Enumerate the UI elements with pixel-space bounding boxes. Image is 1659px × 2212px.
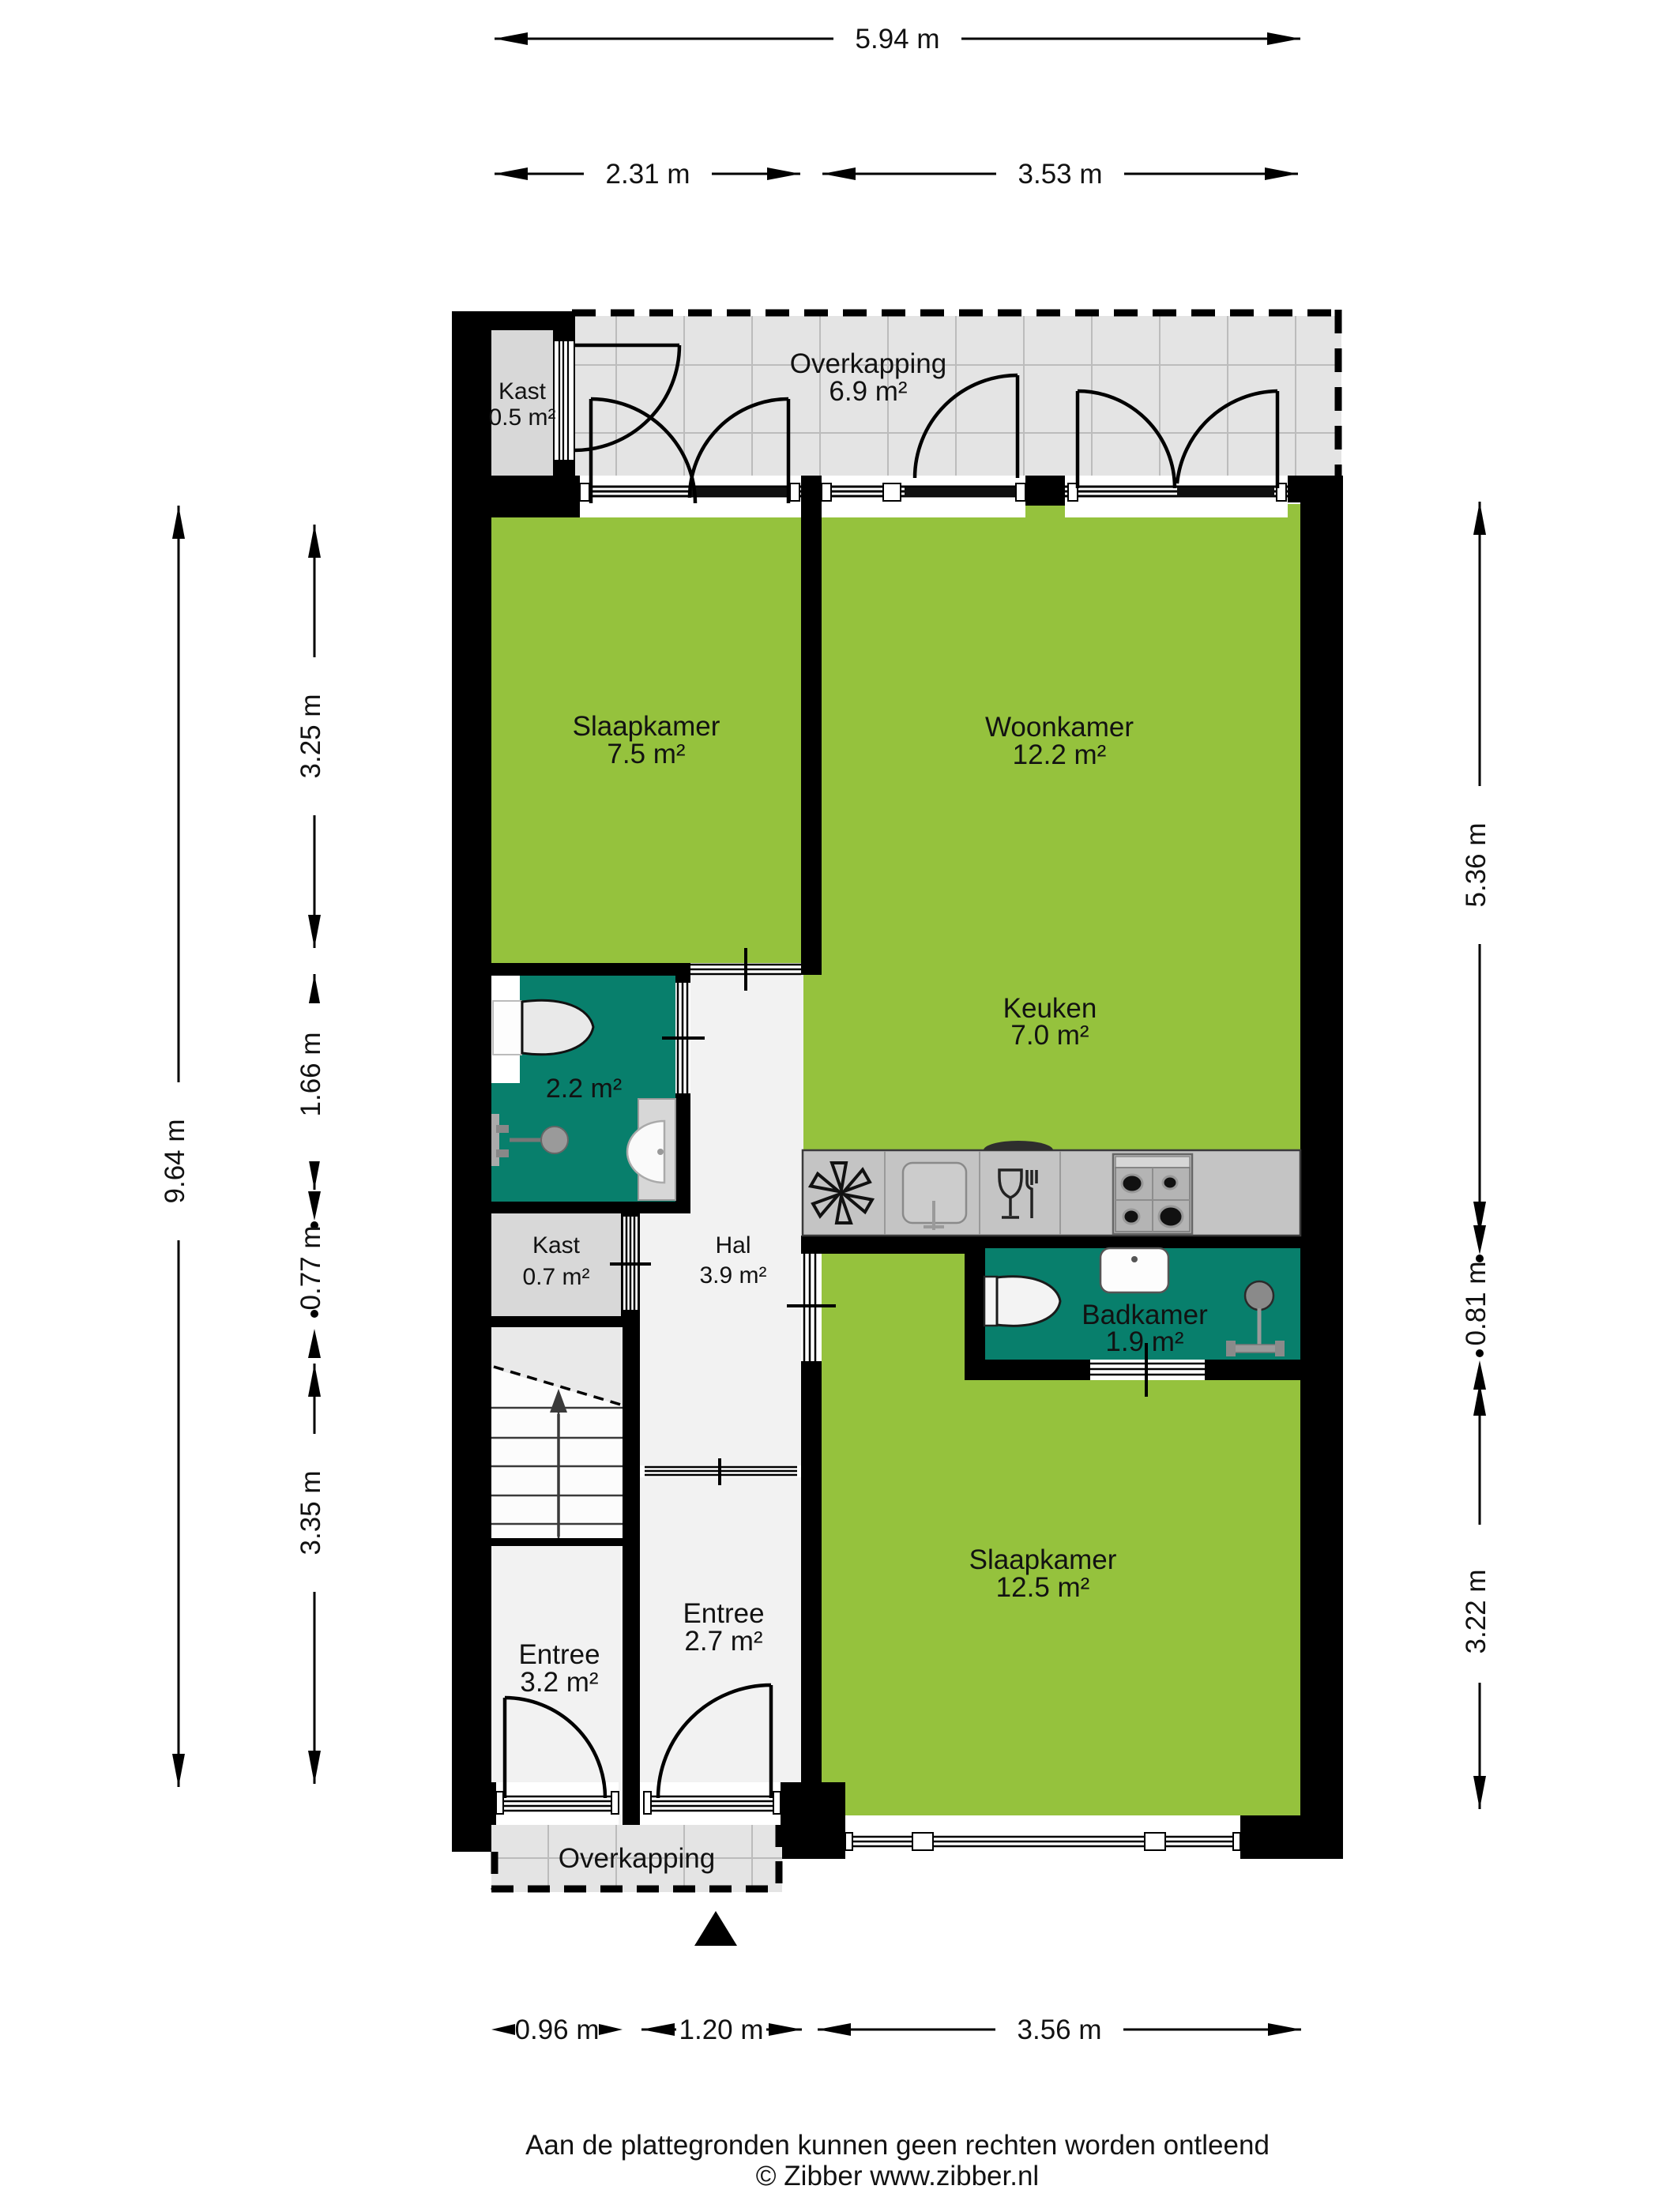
svg-text:3.53 m: 3.53 m [1018,159,1103,190]
svg-text:2.31 m: 2.31 m [606,159,690,190]
svg-text:6.9 m²: 6.9 m² [829,376,907,407]
svg-text:3.25 m: 3.25 m [295,694,326,779]
svg-text:1.66 m: 1.66 m [295,1033,326,1117]
svg-text:Overkapping: Overkapping [559,1843,715,1874]
svg-text:3.56 m: 3.56 m [1018,2014,1102,2045]
svg-text:Slaapkamer: Slaapkamer [969,1544,1117,1575]
svg-text:5.36 m: 5.36 m [1461,823,1492,908]
svg-text:3.22 m: 3.22 m [1461,1570,1492,1654]
svg-text:7.5 m²: 7.5 m² [607,739,685,769]
svg-text:7.0 m²: 7.0 m² [1010,1020,1089,1051]
svg-text:2.2 m²: 2.2 m² [546,1074,622,1104]
svg-text:12.2 m²: 12.2 m² [1013,739,1107,770]
svg-text:Woonkamer: Woonkamer [985,712,1134,743]
svg-text:0.81 m: 0.81 m [1461,1262,1492,1346]
svg-text:Aan de plattegronden kunnen ge: Aan de plattegronden kunnen geen rechten… [525,2130,1270,2161]
svg-text:0.96 m: 0.96 m [515,2014,600,2045]
svg-text:Slaapkamer: Slaapkamer [573,711,720,742]
svg-text:3.2 m²: 3.2 m² [520,1667,598,1698]
svg-text:0.7 m²: 0.7 m² [522,1264,589,1290]
svg-text:0.77 m: 0.77 m [295,1226,326,1311]
svg-text:2.7 m²: 2.7 m² [684,1626,762,1657]
svg-text:Overkapping: Overkapping [790,348,946,379]
svg-text:12.5 m²: 12.5 m² [996,1572,1090,1603]
svg-text:1.20 m: 1.20 m [679,2014,764,2045]
svg-text:Kast: Kast [498,378,547,404]
svg-text:0.5 m²: 0.5 m² [488,404,555,431]
svg-text:9.64 m: 9.64 m [160,1119,190,1204]
svg-text:5.94 m: 5.94 m [856,24,940,55]
svg-text:© Zibber www.zibber.nl: © Zibber www.zibber.nl [756,2161,1039,2191]
svg-text:3.35 m: 3.35 m [295,1471,326,1556]
svg-text:Entree: Entree [518,1639,600,1670]
svg-text:Entree: Entree [683,1598,764,1629]
svg-text:3.9 m²: 3.9 m² [699,1262,766,1288]
svg-text:Hal: Hal [715,1232,750,1258]
svg-text:Kast: Kast [532,1232,581,1258]
